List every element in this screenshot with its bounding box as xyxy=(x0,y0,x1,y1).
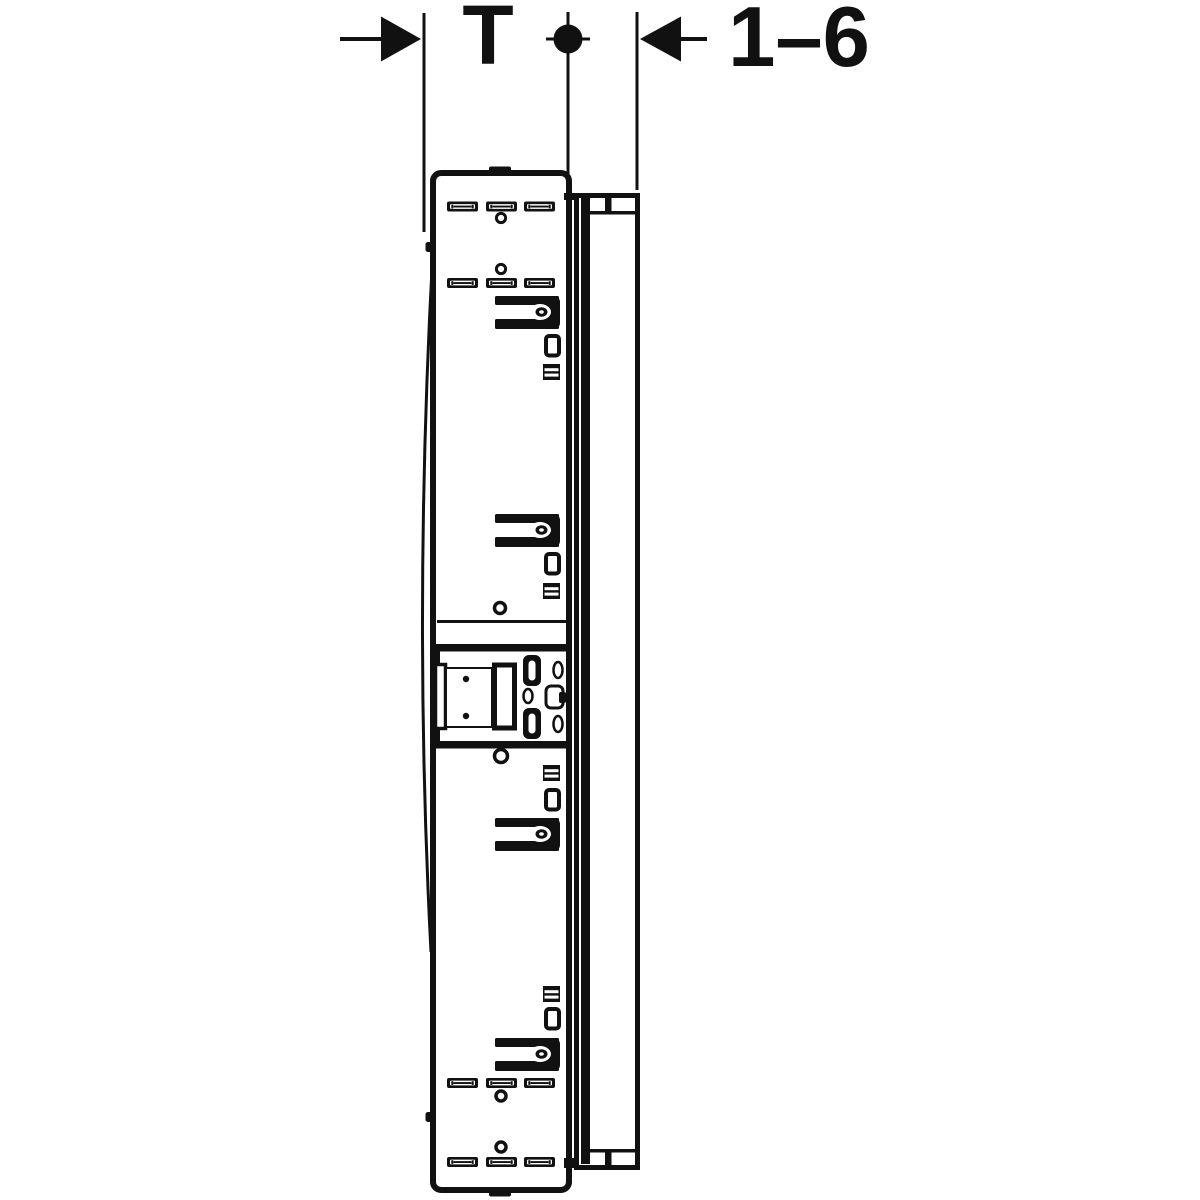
bottom-tab xyxy=(489,1191,511,1197)
oval-hole xyxy=(554,662,563,678)
dimension-range: 1–6 xyxy=(636,0,870,190)
front-panel xyxy=(564,193,638,1168)
vertical-slot-top xyxy=(523,655,541,686)
panel-top-divider xyxy=(605,197,612,212)
oval-hole xyxy=(524,689,533,703)
rail-row-bottom-2 xyxy=(447,1157,555,1167)
clip-plate-4 xyxy=(546,1009,559,1029)
clip-plate-1 xyxy=(546,336,559,356)
screw-stack-3 xyxy=(543,765,560,781)
screw-stack-1 xyxy=(543,364,560,380)
clip-plate-2 xyxy=(546,554,559,574)
mount-box xyxy=(446,668,492,727)
assembly-bottom-bar xyxy=(434,741,567,749)
panel-bottom-divider xyxy=(605,1152,612,1166)
extension-line-right xyxy=(636,12,639,190)
datum-dot-icon xyxy=(554,25,583,54)
mount-rail-profile xyxy=(495,665,515,728)
screw-hole xyxy=(496,213,505,222)
clip-plate-3 xyxy=(546,790,559,810)
side-view-diagram: T 1–6 xyxy=(0,0,1200,1200)
screw-stack-4 xyxy=(543,986,560,1002)
rail-row-bottom-1 xyxy=(447,1078,555,1088)
screw-hole xyxy=(495,603,506,614)
top-tab xyxy=(489,167,511,173)
panel-inner-face xyxy=(581,198,590,1164)
vertical-slot-bottom xyxy=(523,708,541,739)
panel-bottom-connector xyxy=(564,1158,578,1168)
datum-marker xyxy=(546,12,590,186)
screw-hole xyxy=(495,750,508,763)
technical-drawing-page: T 1–6 xyxy=(0,0,1200,1200)
mount-box-screw xyxy=(463,676,469,682)
dimension-leader-line xyxy=(680,37,707,41)
rail-row-top-2 xyxy=(447,278,555,288)
screw-hole xyxy=(496,264,505,273)
assembly-top-bar xyxy=(434,644,567,652)
left-anchor-bracket xyxy=(436,665,446,729)
dimension-arrow-left-icon xyxy=(640,17,681,62)
range-label: 1–6 xyxy=(728,0,870,85)
oval-hole xyxy=(554,716,563,732)
dimension-arrow-right-icon xyxy=(381,17,421,62)
panel-top-connector xyxy=(564,193,578,200)
rail-row-top-1 xyxy=(447,202,555,212)
screw-hole xyxy=(496,1091,506,1101)
left-edge-notch-bottom xyxy=(426,1112,434,1122)
extension-line-left xyxy=(423,13,426,232)
screw-stack-2 xyxy=(543,583,560,599)
depth-label: T xyxy=(462,0,513,82)
dimension-leader-line xyxy=(340,37,383,41)
panel-top-rail-line xyxy=(590,211,635,215)
edge-notch xyxy=(559,692,566,703)
mount-box-screw xyxy=(463,713,469,719)
screw-hole xyxy=(496,1142,506,1152)
divider-line xyxy=(437,620,567,623)
panel-bottom-rail-line xyxy=(590,1149,635,1153)
